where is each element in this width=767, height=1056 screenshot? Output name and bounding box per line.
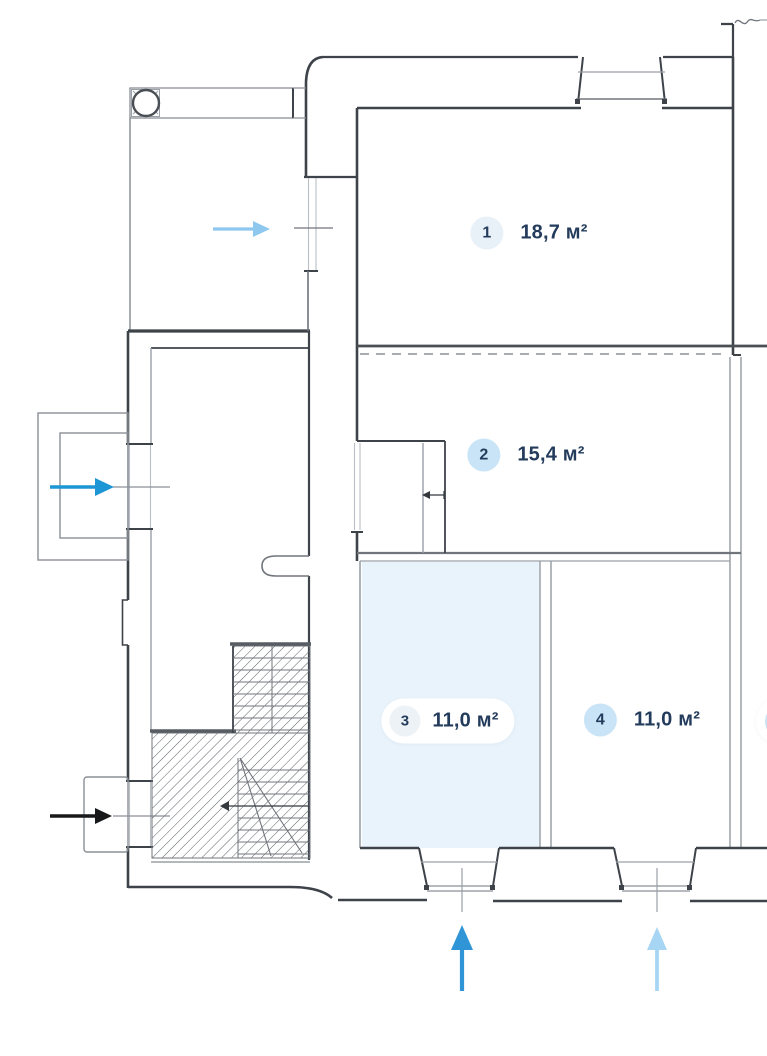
entrance-arrow-top-left: [213, 221, 270, 237]
wall-stub: [262, 556, 309, 576]
floor-plan-canvas: 1 18,7 м² 2 15,4 м² 3 11,0 м² 4 11,0 м²: [0, 0, 767, 1056]
upper-door-frame: [309, 178, 317, 270]
window-jambs: [578, 57, 665, 103]
room-3-area-text: 11,0 м²: [432, 710, 498, 733]
room-1-area-text: 18,7 м²: [520, 222, 587, 245]
room-4-badge: 4: [584, 704, 617, 737]
room-4-area-text: 11,0 м²: [634, 709, 700, 732]
room-3-label[interactable]: 3 11,0 м²: [381, 699, 514, 744]
floor-plan-drawing: [0, 0, 767, 1056]
porches: [38, 413, 128, 852]
staircase: [150, 644, 311, 862]
room-3-badge: 3: [389, 706, 420, 737]
room-2-area-text: 15,4 м²: [517, 444, 584, 467]
hall-door-frame: [355, 443, 361, 530]
wall-break-mark: [735, 20, 760, 24]
entrance-arrow-room4: [647, 927, 667, 991]
bottom-wall: [338, 848, 767, 912]
room-1-badge: 1: [470, 217, 503, 250]
round-column: [133, 90, 159, 116]
room-2-label[interactable]: 2 15,4 м²: [467, 439, 584, 472]
room-2-badge: 2: [467, 439, 500, 472]
entrance-arrow-bottom-left: [50, 808, 112, 824]
room-4-label[interactable]: 4 11,0 м²: [584, 704, 700, 737]
room-1-label[interactable]: 1 18,7 м²: [470, 217, 587, 250]
entrance-arrow-room3: [451, 925, 473, 991]
